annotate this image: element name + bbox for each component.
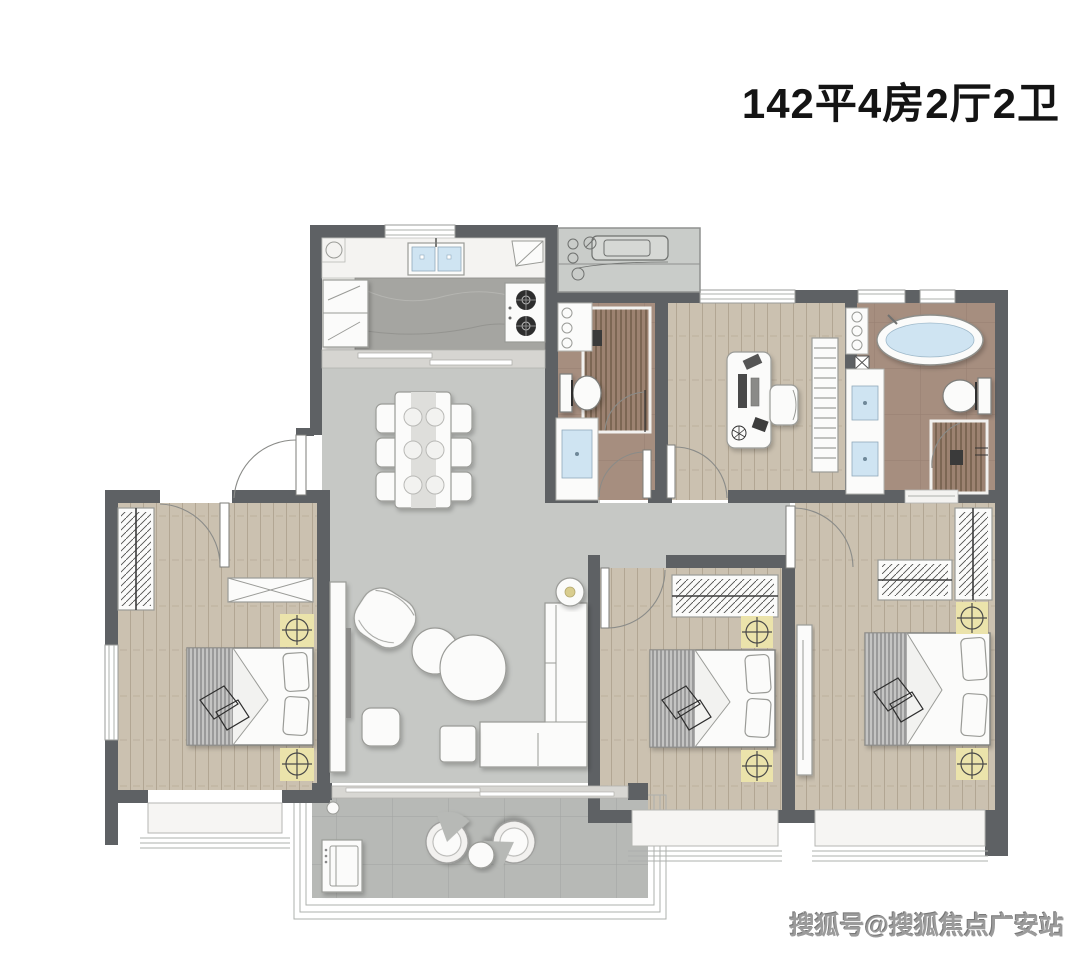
balcony-sliding-door [332, 786, 628, 798]
bookshelf [812, 338, 838, 472]
washing-machine [322, 840, 362, 892]
master-shower [931, 421, 988, 493]
vanity-sink [556, 418, 598, 500]
shower [583, 308, 650, 432]
bed [187, 648, 313, 745]
study-window [700, 290, 795, 303]
kitchen [322, 238, 545, 368]
storage-cabinet [228, 578, 313, 602]
equipment-platform [558, 228, 700, 292]
desk-chair [770, 385, 798, 425]
bed [865, 633, 990, 745]
pouf [362, 708, 400, 746]
master-bath-threshold [905, 490, 958, 503]
wardrobe [672, 575, 778, 617]
kitchen-sink [408, 238, 464, 275]
floor-drain [327, 802, 339, 814]
left-bedroom-side-window [105, 645, 118, 740]
master-bedroom-bay-window [812, 810, 988, 861]
bathtub [877, 315, 983, 365]
gas-stove [505, 283, 545, 342]
middle-bedroom-bay-window [628, 810, 782, 861]
left-bedroom-bay-window [140, 803, 290, 848]
toilet [560, 374, 601, 412]
desk [727, 352, 771, 448]
master-toilet [943, 378, 991, 414]
fridge [323, 280, 368, 347]
bed [650, 650, 775, 747]
kitchen-sliding-door [322, 350, 545, 368]
page-title: 142平4房2厅2卫 [742, 70, 1060, 131]
dresser [797, 625, 812, 775]
dining-table [395, 392, 451, 508]
dining-area [376, 392, 472, 508]
floorplan-page: 142平4房2厅2卫 搜狐号@搜狐焦点广安站 [0, 0, 1080, 965]
sofa-side-table [440, 726, 476, 762]
watermark: 搜狐号@搜狐焦点广安站 [790, 906, 1064, 942]
balcony-table [468, 842, 494, 868]
corner-cabinet [512, 241, 543, 266]
wardrobe [118, 508, 154, 610]
wardrobe-horizontal [878, 560, 952, 600]
bathroom-shelf [558, 303, 592, 351]
entry-door [234, 435, 306, 498]
column [322, 238, 345, 262]
wardrobe-vertical [955, 508, 992, 600]
floorplan-drawing [0, 0, 1080, 965]
round-side-table [556, 578, 584, 606]
double-vanity [846, 369, 884, 494]
